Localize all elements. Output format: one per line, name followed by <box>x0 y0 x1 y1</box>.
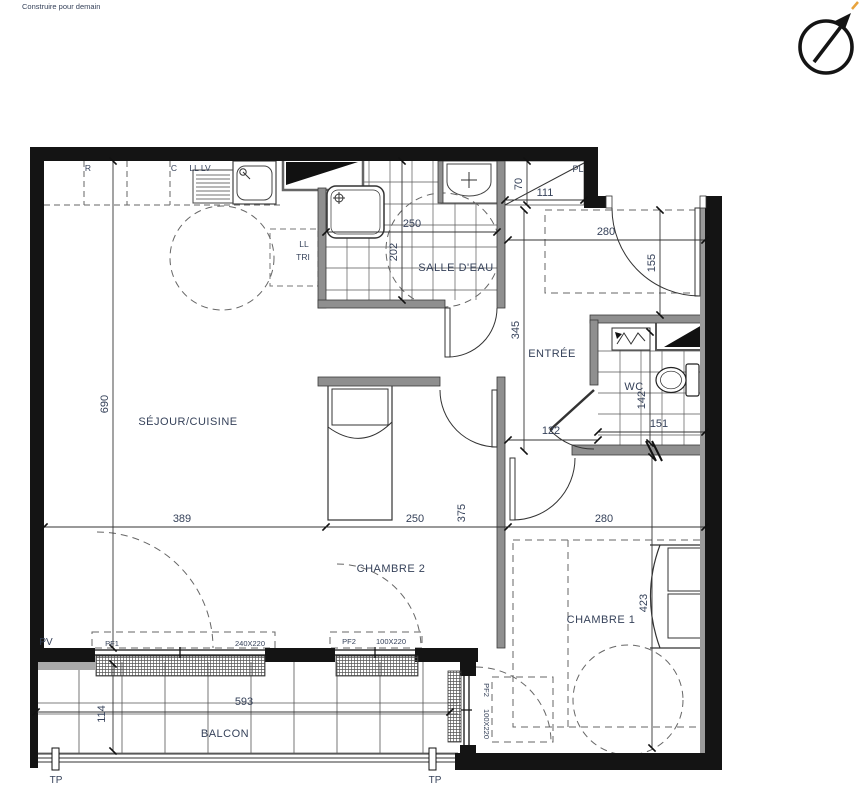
label-pf2: PF2 <box>342 637 356 646</box>
dim-423: 423 <box>638 594 650 612</box>
label-pf1-size: 240X220 <box>235 639 265 648</box>
dim-155: 155 <box>646 254 658 272</box>
logo-text: Construire pour demain <box>22 2 100 11</box>
label-pf2-side-size: 100X220 <box>482 709 491 739</box>
window-pf2-bottom <box>335 647 418 676</box>
label-pf1: PF1 <box>105 639 119 648</box>
dim-593: 593 <box>235 696 253 708</box>
dim-250-sde: 250 <box>403 218 421 230</box>
door-salle-deau <box>445 308 497 357</box>
window-pf1 <box>95 647 265 676</box>
label-sejour-cuisine: SÉJOUR/CUISINE <box>138 415 237 428</box>
label-pv: PV <box>39 637 53 648</box>
vmc-box <box>612 328 650 350</box>
tp-posts <box>52 748 436 770</box>
label-chambre1: CHAMBRE 1 <box>567 614 636 626</box>
dim-114: 114 <box>96 705 108 723</box>
label-cooker: C <box>171 163 177 173</box>
wc-shaft <box>656 322 705 350</box>
right-wall-inner-face <box>700 208 705 753</box>
shower-tray <box>327 186 384 238</box>
label-wc: WC <box>624 381 643 393</box>
balcony-railing <box>36 754 458 762</box>
dim-280-ch1: 280 <box>595 513 613 525</box>
dim-122: 122 <box>542 425 560 437</box>
label-entree: ENTRÉE <box>528 347 576 360</box>
north-arrow-icon <box>800 2 858 73</box>
dim-250-ch2: 250 <box>406 513 424 525</box>
dim-690: 690 <box>99 395 111 413</box>
label-pf2-side: PF2 <box>482 683 491 697</box>
dim-202: 202 <box>388 243 400 261</box>
ll-tri-closet <box>270 229 318 286</box>
kitchen-sink <box>233 161 276 204</box>
dim-142: 142 <box>636 391 648 409</box>
label-balcon: BALCON <box>201 728 249 740</box>
floor-plan-page: Construire pour demain <box>0 0 859 800</box>
bed-chambre1 <box>650 545 705 648</box>
door-chambre2 <box>440 390 497 447</box>
label-salle-deau: SALLE D'EAU <box>418 262 493 274</box>
balcony-wall-face <box>36 662 95 670</box>
floor-plan-drawing: Construire pour demain <box>0 0 859 800</box>
toilet <box>656 364 699 396</box>
label-fridge: R <box>85 163 91 173</box>
door-chambre1 <box>510 458 575 520</box>
label-tri: TRI <box>296 252 310 262</box>
washbasin <box>441 161 497 203</box>
label-tp-right: TP <box>429 775 442 786</box>
dim-345: 345 <box>510 321 522 339</box>
dim-111: 111 <box>537 187 554 199</box>
dim-389: 389 <box>173 513 191 525</box>
kitchen-drainboard <box>193 170 233 203</box>
window-pf2-side <box>448 671 472 745</box>
dim-280-top: 280 <box>597 226 615 238</box>
entrance-door <box>606 196 706 296</box>
dim-70: 70 <box>513 178 525 190</box>
bed-chambre2 <box>328 385 392 520</box>
label-tp-left: TP <box>50 775 63 786</box>
label-pl: PL <box>572 164 583 174</box>
kitchen-shaft <box>283 158 363 190</box>
label-ll: LL <box>299 239 309 249</box>
label-pf2-size: 100X220 <box>376 637 406 646</box>
label-ll-lv: LL LV <box>189 163 211 173</box>
dim-375: 375 <box>456 504 468 522</box>
dim-151: 151 <box>650 418 668 430</box>
label-chambre2: CHAMBRE 2 <box>357 563 426 575</box>
